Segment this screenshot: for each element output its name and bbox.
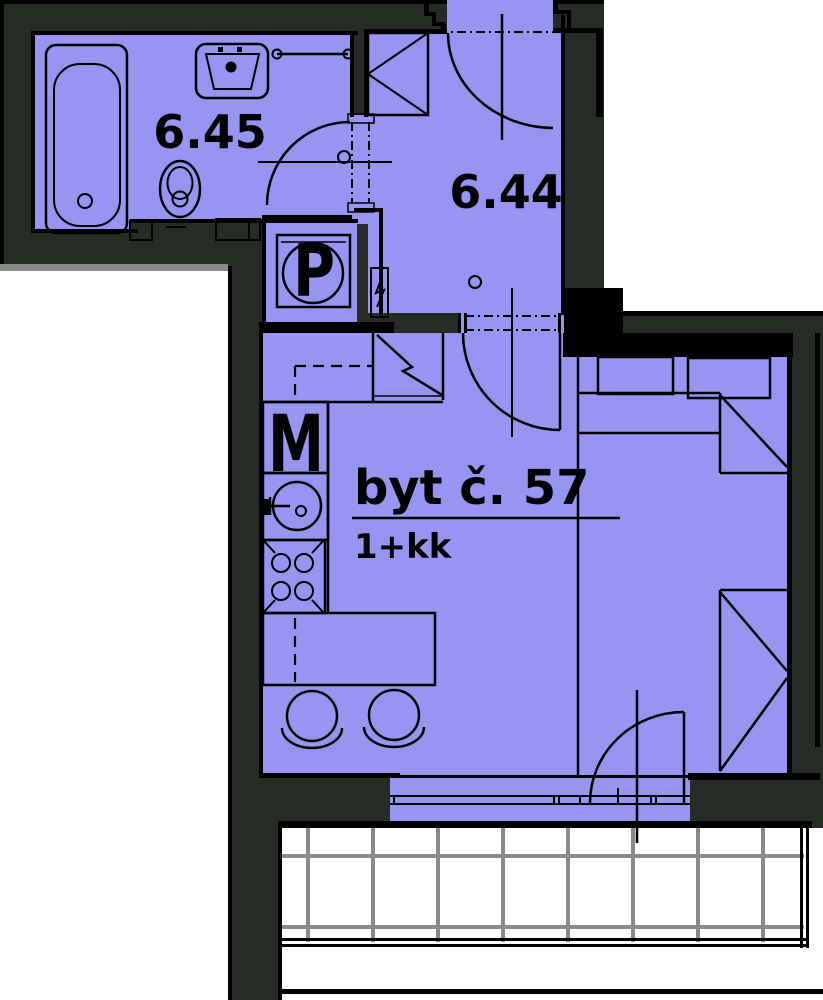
washing-machine-label: P: [293, 229, 335, 313]
room-label-bathroom: 6.45: [153, 105, 267, 159]
dishwasher: M: [263, 400, 328, 490]
outside-top-right: [604, 0, 823, 311]
main-room-floor: [263, 333, 790, 777]
dishwasher-label: M: [268, 400, 324, 490]
entrance-opening: [447, 0, 553, 35]
basin-tap: [226, 62, 237, 73]
floor-plan-drawing: P M: [0, 0, 823, 1000]
floor-plan: P M: [0, 0, 823, 1000]
wall-corner: [565, 288, 623, 338]
apartment-title: byt č. 57: [354, 460, 590, 516]
room-label-hall: 6.44: [449, 165, 563, 219]
outside-left: [0, 270, 228, 1000]
apartment-layout: 1+kk: [354, 527, 453, 567]
neighbor-edge: [0, 264, 228, 271]
balcony: [278, 828, 823, 1000]
window-band: [390, 777, 690, 823]
